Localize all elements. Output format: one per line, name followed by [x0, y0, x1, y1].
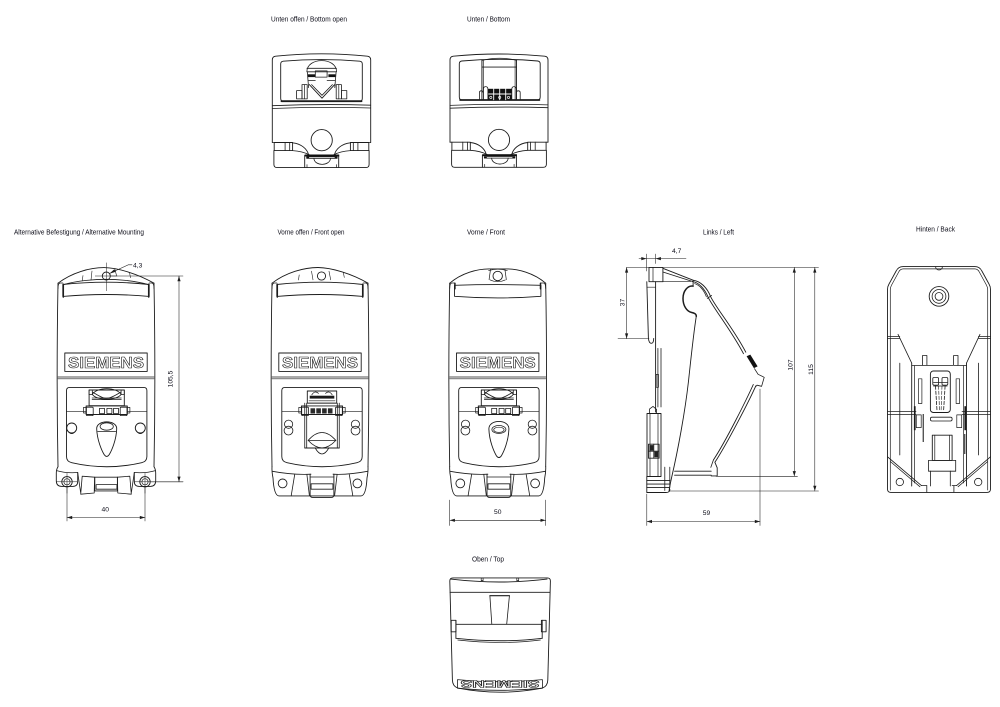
svg-text:Hinten / Back: Hinten / Back [916, 225, 955, 234]
svg-text:40: 40 [102, 507, 110, 514]
svg-text:Vorne offen / Front open: Vorne offen / Front open [278, 228, 345, 237]
svg-text:4,3: 4,3 [133, 262, 143, 269]
svg-text:Links / Left: Links / Left [703, 228, 734, 237]
svg-text:SIEMENS: SIEMENS [461, 677, 540, 689]
svg-text:Unten offen / Bottom open: Unten offen / Bottom open [271, 15, 347, 24]
svg-text:37: 37 [619, 299, 626, 307]
svg-text:59: 59 [703, 510, 711, 517]
svg-text:Alternative Befestigung / Alte: Alternative Befestigung / Alternative Mo… [14, 228, 144, 237]
svg-text:107: 107 [788, 359, 795, 370]
svg-text:SIEMENS: SIEMENS [68, 355, 144, 372]
svg-text:50: 50 [494, 509, 502, 516]
svg-text:4,7: 4,7 [672, 248, 682, 255]
svg-text:Vorne / Front: Vorne / Front [467, 228, 505, 237]
svg-text:115: 115 [808, 364, 815, 375]
svg-text:105,5: 105,5 [168, 370, 175, 387]
svg-text:Unten / Bottom: Unten / Bottom [467, 15, 510, 24]
svg-text:Oben / Top: Oben / Top [472, 555, 504, 564]
svg-text:SIEMENS: SIEMENS [460, 355, 536, 372]
svg-text:SIEMENS: SIEMENS [282, 355, 358, 372]
